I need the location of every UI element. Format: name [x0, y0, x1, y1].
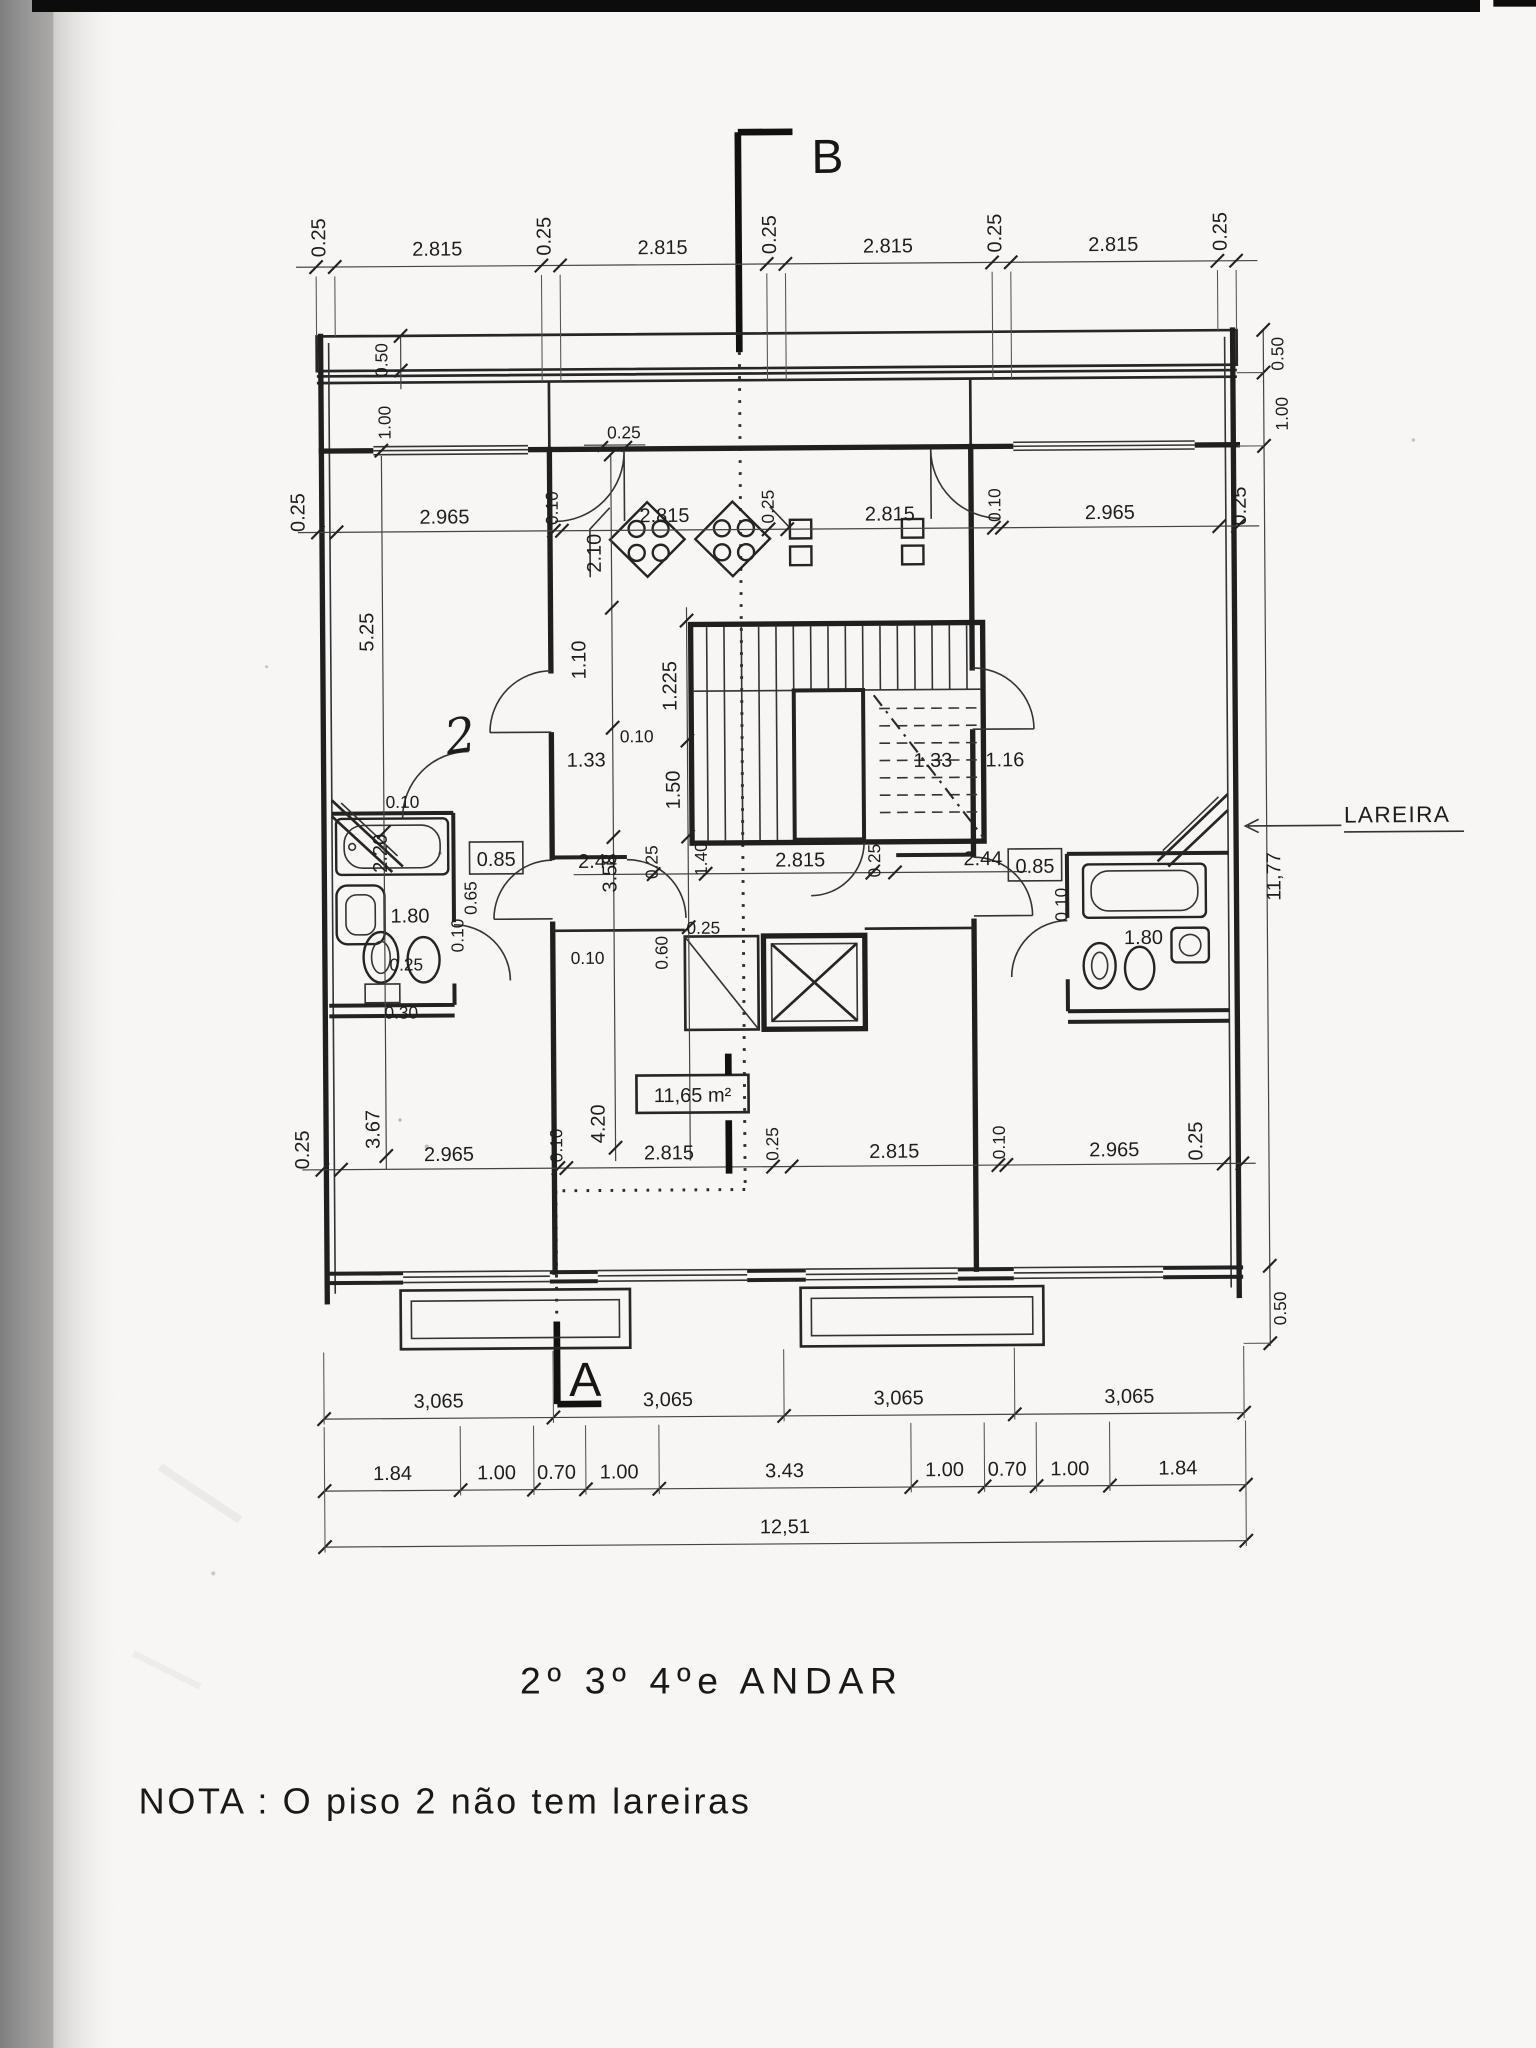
- dim-label: 1.00: [1050, 1458, 1089, 1480]
- dim-label: 1.80: [390, 905, 429, 927]
- dim-label: 5.25: [356, 613, 378, 652]
- dim-label: 4.20: [588, 1104, 610, 1143]
- dim-label: 2.965: [1089, 1139, 1139, 1161]
- dim-label: 2.20: [370, 834, 392, 873]
- lareira-label: LAREIRA: [1344, 801, 1450, 828]
- dim-label: 0.10: [989, 1125, 1009, 1159]
- dim-label: 0.25: [287, 493, 309, 532]
- dim-label: 0.25: [864, 844, 884, 878]
- dim-label: 2.815: [775, 849, 825, 871]
- dim-label: 2.815: [412, 238, 462, 260]
- dim-label: 1.225: [659, 661, 681, 711]
- dim-label: 0.65: [460, 881, 480, 915]
- dim-label: 0.10: [386, 792, 420, 812]
- dim-label: 1.00: [374, 406, 394, 440]
- dim-label: 1.40: [691, 842, 711, 876]
- dim-label: 0.25: [641, 845, 661, 879]
- dim-label: 2.965: [424, 1144, 474, 1166]
- dim-label: 3,065: [874, 1387, 924, 1409]
- dim-label: 2.44: [963, 848, 1002, 870]
- dim-label: 2.815: [869, 1141, 919, 1163]
- dim-label: 2.815: [639, 505, 689, 527]
- dim-label: 3.58: [599, 854, 621, 893]
- dim-label: 0.10: [984, 488, 1004, 522]
- area-label: 11,65 m²: [654, 1085, 732, 1108]
- section-marker-b: B: [811, 131, 843, 184]
- dim-label: 0.30: [384, 1002, 418, 1022]
- dim-label: 1.33: [567, 749, 606, 771]
- dim-label-total: 12,51: [760, 1516, 810, 1538]
- floor-plan-drawing: B A: [0, 0, 1536, 2048]
- dim-label: 0.25: [758, 490, 778, 524]
- dim-label: 0.10: [542, 491, 562, 525]
- dim-label: 1.16: [985, 749, 1024, 771]
- dim-label: 2.815: [865, 503, 915, 525]
- dim-label: 0.10: [546, 1129, 566, 1163]
- dim-label: 2.965: [419, 506, 469, 528]
- dim-label: 0.50: [1267, 337, 1287, 371]
- dim-label: 2.815: [863, 235, 913, 257]
- dim-label: 0.70: [537, 1462, 576, 1484]
- dim-label: 2.815: [638, 237, 688, 259]
- dim-label: 1.80: [1124, 927, 1163, 949]
- dim-label: 0.70: [988, 1459, 1027, 1481]
- dim-label: 0.10: [571, 948, 605, 968]
- dim-label: 1.00: [600, 1461, 639, 1483]
- dim-label: 0.10: [1051, 888, 1071, 922]
- dim-label: 0.25: [292, 1130, 314, 1169]
- dim-label: 0.25: [1185, 1121, 1207, 1160]
- dim-label: 11,77: [1263, 852, 1285, 901]
- dim-label: 2.965: [1085, 502, 1135, 524]
- dim-label: 1.10: [568, 640, 590, 679]
- dim-label: 0.50: [371, 343, 391, 377]
- dim-label: 3.67: [362, 1110, 384, 1149]
- dim-label: 0.10: [447, 919, 467, 953]
- dim-label: 0.60: [651, 936, 671, 970]
- dim-label: 0.25: [607, 422, 641, 442]
- dim-label: 2.815: [1088, 234, 1138, 256]
- dim-label: 1.00: [925, 1459, 964, 1481]
- dim-label: 0.25: [308, 218, 330, 257]
- dim-label: 0.25: [984, 214, 1006, 253]
- dim-label: 0.85: [1015, 856, 1054, 878]
- paper-background: [0, 0, 1536, 2048]
- dim-label: 1.84: [1158, 1457, 1197, 1479]
- scan-edge-dark: [0, 0, 53, 2048]
- dim-label: 3.43: [765, 1460, 804, 1482]
- dim-label: 0.10: [620, 726, 654, 746]
- dim-label: 0.25: [1209, 212, 1231, 251]
- dim-label: 1.50: [663, 770, 685, 809]
- dim-label: 1.84: [373, 1463, 412, 1485]
- dim-label: 1.00: [477, 1462, 516, 1484]
- scan-top-bar: [32, 0, 1480, 12]
- scanned-floor-plan-page: B A: [0, 0, 1536, 2048]
- dim-label: 0.25: [389, 954, 423, 974]
- dim-label: 0.25: [533, 217, 555, 256]
- dim-label: 3,065: [1104, 1386, 1154, 1408]
- drawing-note: NOTA : O piso 2 não tem lareiras: [139, 1780, 752, 1821]
- dim-label: 1.33: [913, 750, 952, 772]
- dim-label: 0.25: [1229, 486, 1251, 525]
- drawing-title: 2º 3º 4ºe ANDAR: [520, 1659, 904, 1701]
- dim-label: 0.50: [1270, 1292, 1290, 1326]
- dim-label: 2.10: [584, 534, 606, 573]
- dim-label: 0.25: [759, 215, 781, 254]
- dim-label: 3,065: [414, 1390, 464, 1412]
- dim-label: 0.25: [686, 918, 720, 938]
- dim-label: 0.25: [762, 1127, 782, 1161]
- section-marker-a: A: [569, 1354, 601, 1407]
- dim-label: 0.85: [477, 849, 516, 871]
- scan-top-nub: [1493, 0, 1536, 7]
- dim-label: 2.815: [644, 1142, 694, 1164]
- dim-label: 3,065: [643, 1389, 693, 1411]
- dim-label: 1.00: [1272, 397, 1292, 431]
